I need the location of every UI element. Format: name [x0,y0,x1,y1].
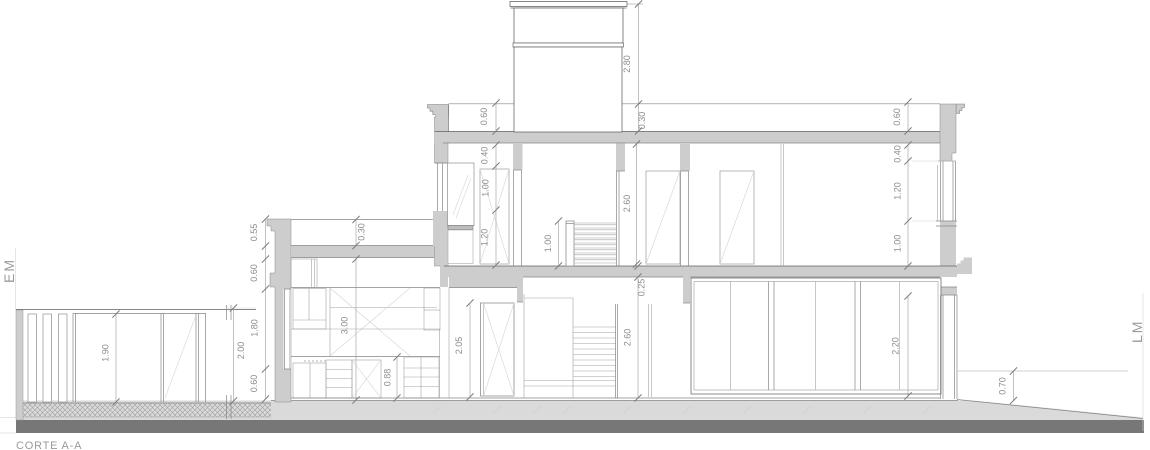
svg-text:1.90: 1.90 [101,344,111,362]
svg-text:0.70: 0.70 [998,377,1008,395]
svg-text:2.60: 2.60 [623,329,633,347]
svg-text:0.40: 0.40 [480,147,490,165]
svg-text:0.40: 0.40 [893,145,903,163]
svg-text:EM: EM [1,258,17,283]
svg-text:0.30: 0.30 [357,223,367,241]
svg-text:0.60: 0.60 [892,108,902,126]
svg-text:1.20: 1.20 [480,229,490,247]
svg-text:0.88: 0.88 [383,369,393,387]
svg-text:1.00: 1.00 [543,235,553,253]
svg-text:3.00: 3.00 [340,317,350,335]
svg-text:1.00: 1.00 [893,235,903,253]
svg-text:LM: LM [1129,320,1145,343]
svg-text:2.05: 2.05 [454,337,464,355]
svg-text:2.00: 2.00 [236,342,246,360]
svg-text:0.60: 0.60 [249,264,259,282]
svg-text:1.80: 1.80 [250,319,260,337]
svg-text:CORTE A-A: CORTE A-A [16,440,82,450]
svg-text:1.20: 1.20 [893,182,903,200]
svg-text:0.60: 0.60 [249,375,259,393]
svg-text:2.60: 2.60 [622,195,632,213]
svg-text:0.55: 0.55 [249,224,259,242]
svg-text:1.00: 1.00 [481,179,491,197]
svg-text:0.60: 0.60 [479,108,489,126]
svg-text:2.80: 2.80 [622,55,632,73]
svg-text:2.20: 2.20 [891,337,901,355]
svg-text:0.30: 0.30 [637,112,647,130]
